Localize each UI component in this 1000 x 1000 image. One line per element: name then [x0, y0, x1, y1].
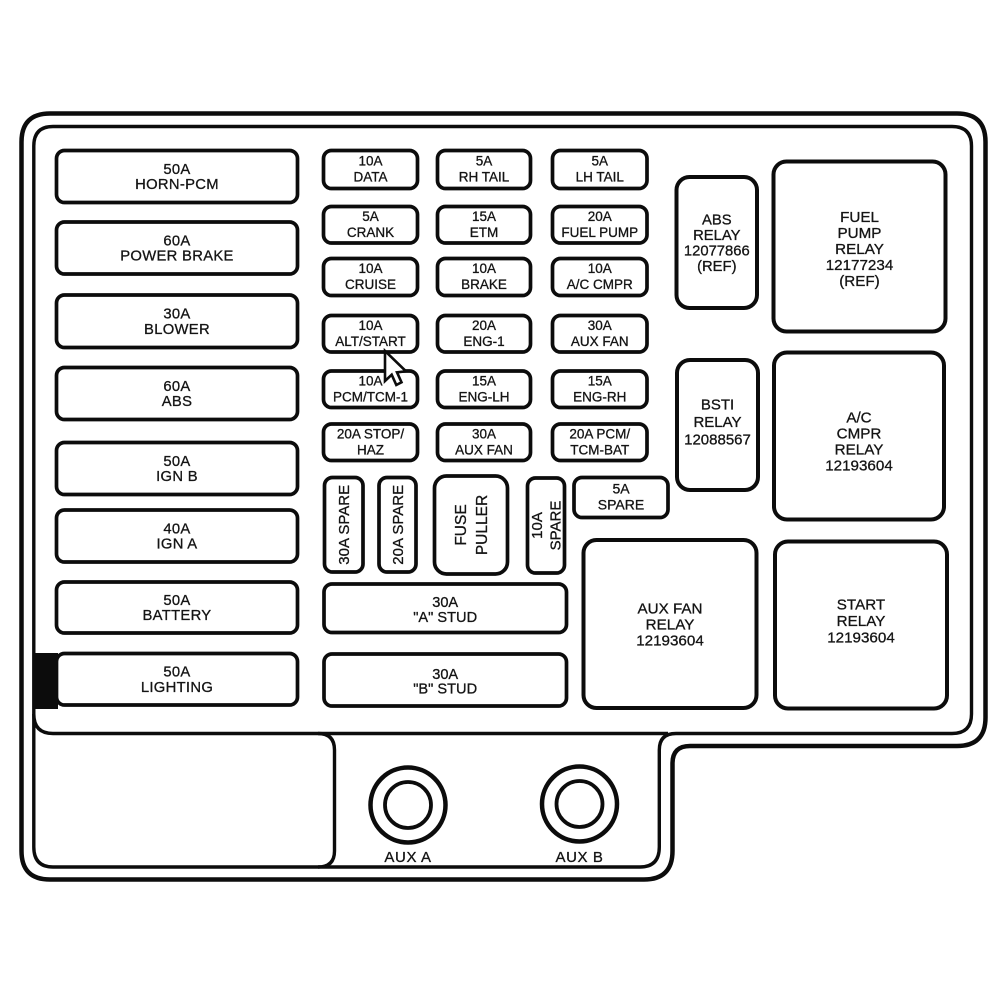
svg-text:20A: 20A: [588, 209, 612, 224]
svg-text:12177234: 12177234: [826, 257, 894, 274]
svg-text:RELAY: RELAY: [835, 241, 884, 258]
svg-text:30A: 30A: [472, 426, 496, 441]
svg-text:RELAY: RELAY: [837, 613, 886, 630]
svg-text:50A: 50A: [163, 162, 190, 178]
svg-text:20A PCM/: 20A PCM/: [569, 426, 630, 441]
svg-text:PUMP: PUMP: [838, 225, 882, 242]
svg-text:RELAY: RELAY: [646, 616, 695, 633]
svg-text:RELAY: RELAY: [693, 414, 741, 431]
svg-text:10A: 10A: [358, 318, 382, 333]
svg-text:15A: 15A: [588, 373, 612, 388]
svg-text:A/C CMPR: A/C CMPR: [567, 277, 633, 292]
svg-text:60A: 60A: [163, 379, 190, 395]
svg-text:IGN B: IGN B: [156, 469, 198, 485]
svg-text:HORN-PCM: HORN-PCM: [135, 177, 219, 193]
svg-text:12193604: 12193604: [636, 632, 704, 649]
svg-text:AUX A: AUX A: [384, 849, 431, 866]
svg-text:FUEL: FUEL: [840, 209, 879, 226]
svg-text:ALT/START: ALT/START: [335, 334, 406, 349]
svg-text:20A STOP/: 20A STOP/: [337, 426, 405, 441]
svg-text:30A: 30A: [163, 307, 190, 323]
svg-text:ABS: ABS: [702, 212, 732, 228]
svg-text:A/C: A/C: [846, 409, 871, 426]
svg-text:15A: 15A: [472, 209, 496, 224]
svg-text:ENG-RH: ENG-RH: [573, 389, 626, 404]
svg-text:5A: 5A: [362, 209, 379, 224]
svg-text:30A: 30A: [432, 595, 458, 611]
svg-text:12077866: 12077866: [684, 244, 750, 260]
svg-text:BSTI: BSTI: [701, 396, 734, 413]
svg-text:PCM/TCM-1: PCM/TCM-1: [333, 389, 408, 404]
svg-text:10A: 10A: [472, 261, 496, 276]
svg-text:AUX FAN: AUX FAN: [455, 442, 513, 457]
svg-text:BATTERY: BATTERY: [143, 608, 212, 624]
svg-text:ETM: ETM: [470, 225, 499, 240]
svg-text:12088567: 12088567: [684, 431, 751, 448]
svg-text:RH TAIL: RH TAIL: [459, 170, 510, 185]
svg-text:START: START: [837, 596, 885, 613]
svg-text:"A" STUD: "A" STUD: [413, 610, 477, 626]
svg-text:30A SPARE: 30A SPARE: [336, 485, 353, 565]
svg-text:SPARE: SPARE: [598, 497, 644, 513]
svg-text:50A: 50A: [163, 454, 190, 470]
svg-text:FUEL PUMP: FUEL PUMP: [561, 225, 638, 240]
svg-text:50A: 50A: [163, 593, 190, 609]
svg-text:(REF): (REF): [697, 259, 737, 275]
svg-text:ENG-LH: ENG-LH: [458, 389, 509, 404]
svg-text:AUX B: AUX B: [555, 849, 603, 866]
svg-text:POWER BRAKE: POWER BRAKE: [120, 249, 233, 265]
svg-text:FUSE: FUSE: [453, 504, 470, 545]
svg-text:10A: 10A: [358, 154, 382, 169]
svg-text:12193604: 12193604: [825, 457, 893, 474]
svg-text:20A: 20A: [472, 318, 496, 333]
svg-text:5A: 5A: [476, 154, 493, 169]
svg-text:DATA: DATA: [353, 170, 387, 185]
svg-text:40A: 40A: [163, 521, 190, 537]
svg-text:10A: 10A: [358, 261, 382, 276]
svg-text:10A: 10A: [358, 373, 382, 388]
svg-text:"B" STUD: "B" STUD: [413, 682, 477, 698]
svg-text:RELAY: RELAY: [835, 441, 884, 458]
svg-text:15A: 15A: [472, 373, 496, 388]
svg-text:(REF): (REF): [839, 273, 880, 290]
svg-text:12193604: 12193604: [827, 629, 895, 646]
svg-text:CMPR: CMPR: [837, 425, 882, 442]
svg-text:SPARE: SPARE: [548, 501, 565, 551]
svg-text:20A SPARE: 20A SPARE: [390, 485, 407, 565]
svg-text:PULLER: PULLER: [474, 495, 491, 555]
svg-text:50A: 50A: [163, 665, 190, 681]
svg-text:30A: 30A: [432, 667, 458, 683]
svg-text:BRAKE: BRAKE: [461, 277, 507, 292]
svg-text:5A: 5A: [612, 481, 630, 497]
svg-text:TCM-BAT: TCM-BAT: [570, 442, 629, 457]
svg-text:ENG-1: ENG-1: [463, 334, 504, 349]
svg-text:HAZ: HAZ: [357, 442, 384, 457]
svg-text:IGN A: IGN A: [157, 537, 198, 553]
svg-text:ABS: ABS: [162, 394, 193, 410]
svg-text:30A: 30A: [588, 318, 612, 333]
svg-text:CRUISE: CRUISE: [345, 277, 396, 292]
svg-text:LIGHTING: LIGHTING: [141, 680, 213, 696]
svg-text:AUX FAN: AUX FAN: [638, 600, 703, 617]
svg-text:10A: 10A: [588, 261, 612, 276]
svg-text:RELAY: RELAY: [693, 228, 741, 244]
svg-text:5A: 5A: [592, 154, 609, 169]
svg-text:10A: 10A: [529, 512, 546, 539]
svg-text:AUX FAN: AUX FAN: [571, 334, 629, 349]
svg-text:LH TAIL: LH TAIL: [576, 170, 625, 185]
svg-text:60A: 60A: [163, 233, 190, 249]
svg-text:BLOWER: BLOWER: [144, 322, 210, 338]
svg-text:CRANK: CRANK: [347, 225, 394, 240]
